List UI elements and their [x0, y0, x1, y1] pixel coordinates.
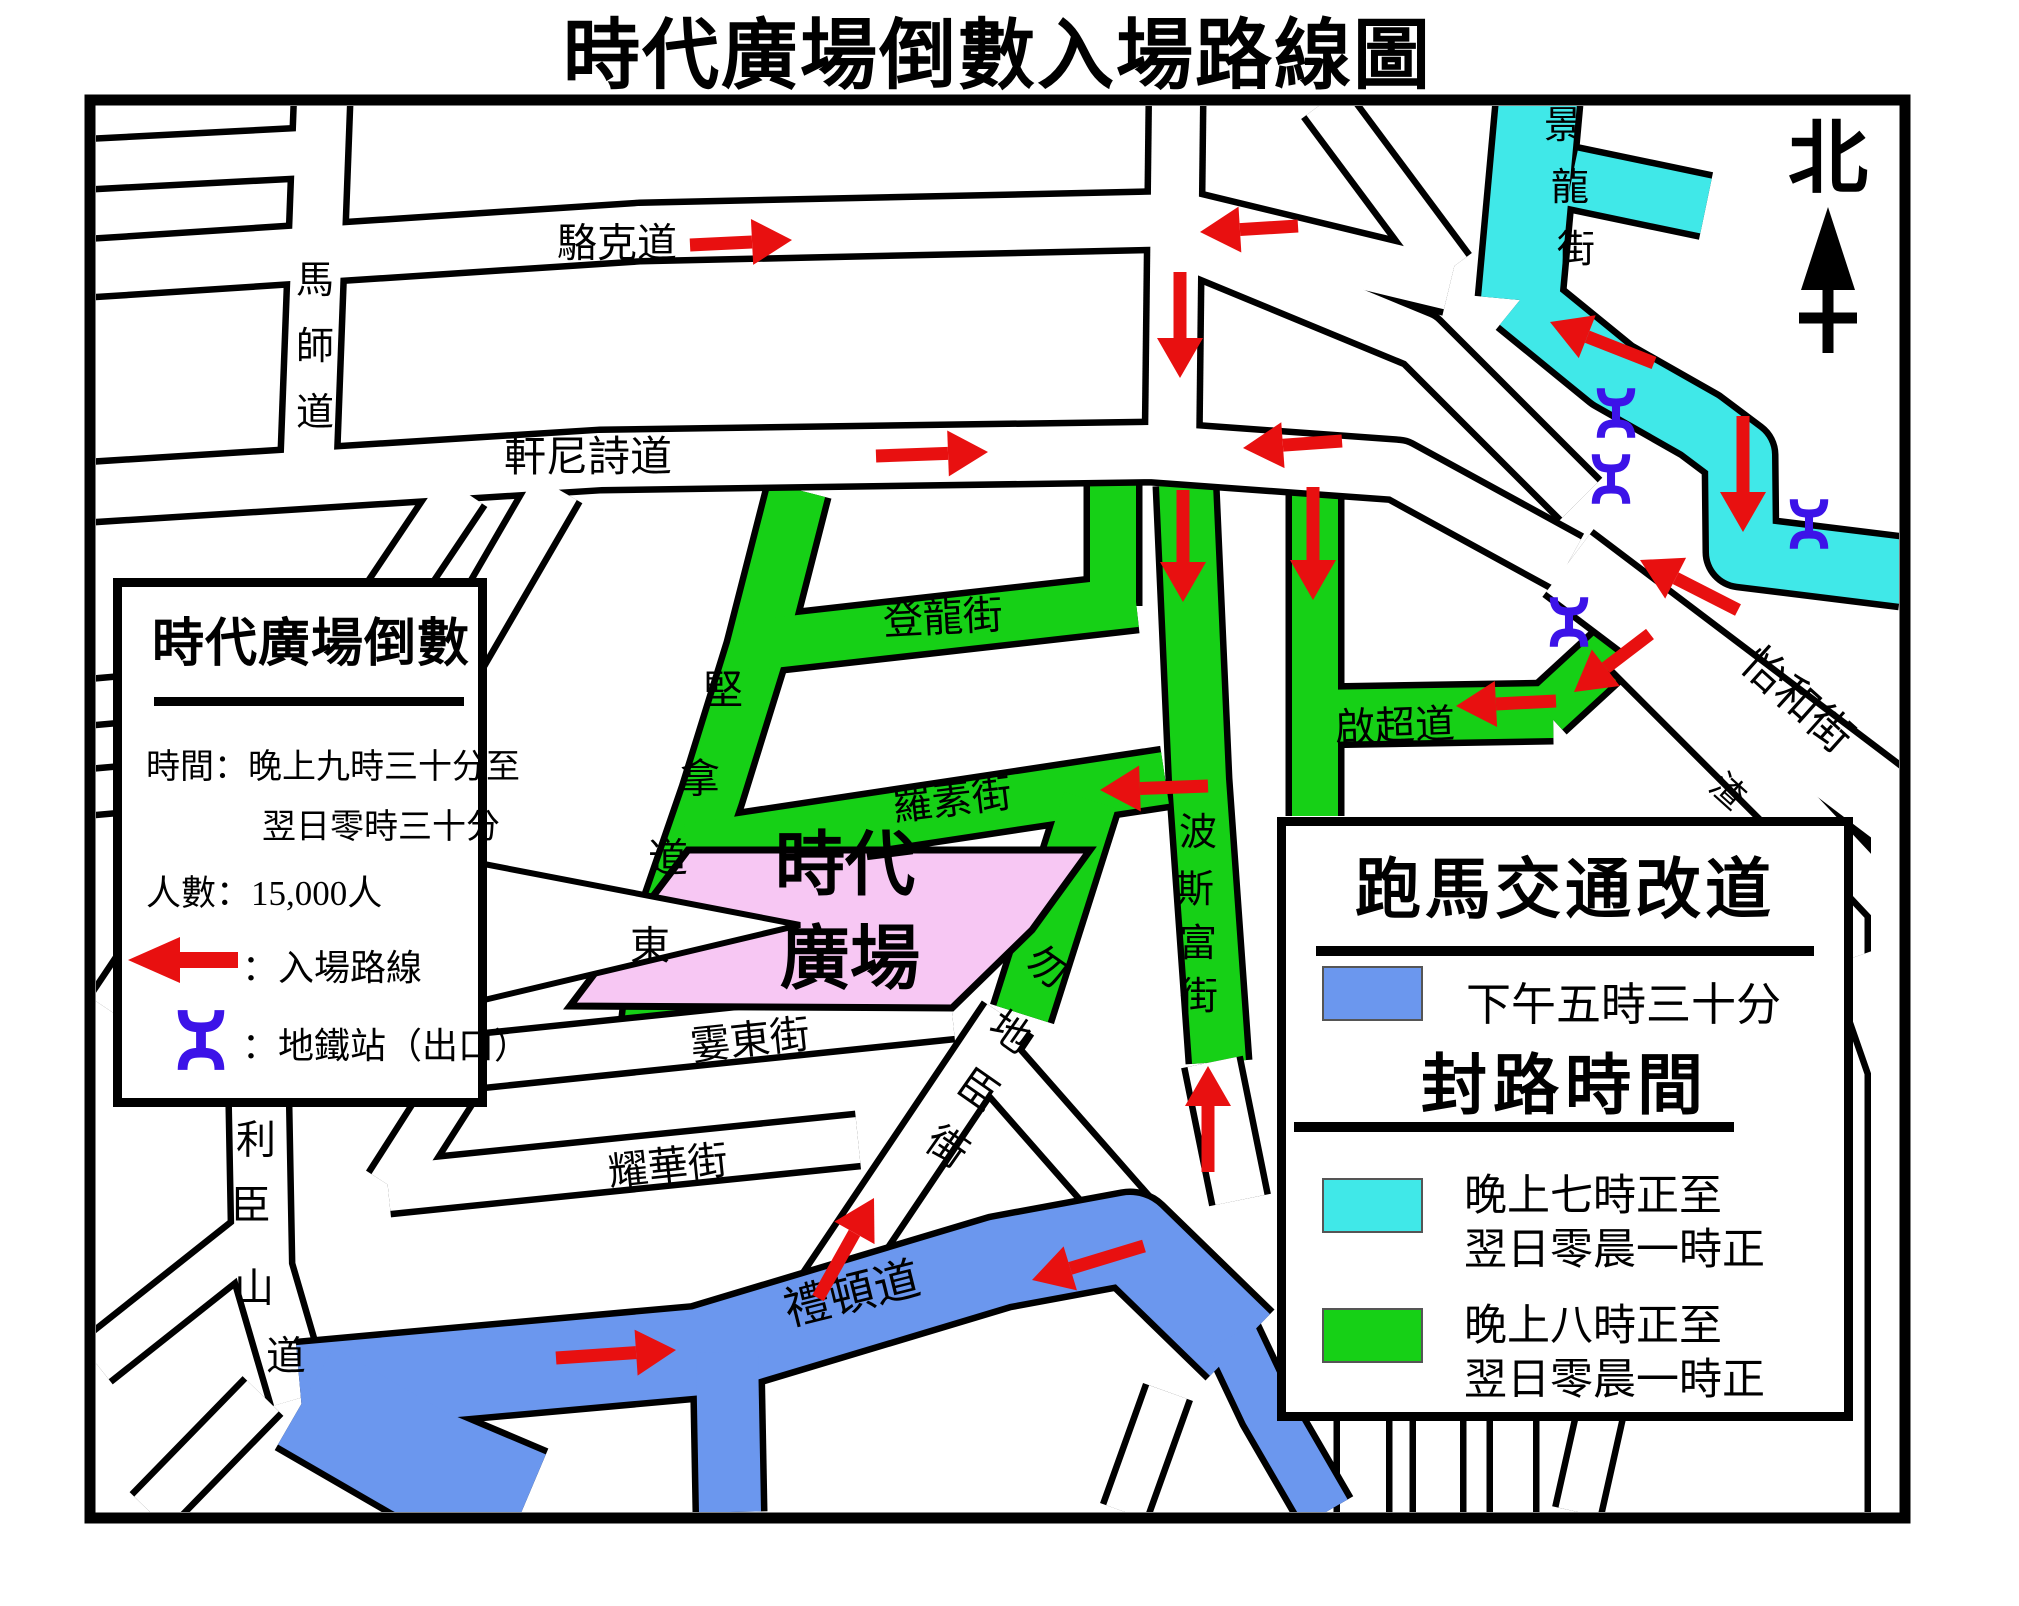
diversion-swatch-blue — [1322, 966, 1423, 1021]
map-label-tang-lung: 登龍街 — [882, 592, 1004, 643]
map-label-marsh-2: 師 — [296, 326, 334, 368]
closure-swatch-cyan — [1322, 1178, 1423, 1233]
legend-right-title-underline — [1316, 946, 1814, 956]
street-south-street-4 — [1578, 1414, 1600, 1512]
map-label-canal-east-2: 拿 — [680, 757, 720, 802]
closure-cyan-time: 晚上七時正至 翌日零晨一時正 — [1464, 1170, 1765, 1278]
street-top-left-street — [92, 152, 322, 164]
page-title: 時代廣場倒數入場路線圖 — [90, 0, 1905, 105]
north-label: 北 — [1788, 116, 1868, 204]
map-label-cannon-2: 龍 — [1551, 167, 1589, 209]
legend-left-title: 時代廣場倒數 — [152, 601, 470, 676]
mtr-station-icon — [156, 997, 246, 1083]
mtr-station-icon — [183, 1010, 220, 1070]
legend-time-line-1: 時間：晚上九時三十分至 — [146, 739, 520, 788]
mtr-station-label: ：地鐵站（出口） — [242, 1017, 530, 1069]
entry-route-label: ：入場路線 — [242, 939, 422, 991]
map-label-morrison-4: 道 — [266, 1334, 306, 1379]
map-label-cannon-3: 街 — [1557, 229, 1595, 271]
legend-right-title: 跑馬交通改道 — [1286, 836, 1844, 932]
map-label-marsh-3: 道 — [296, 392, 334, 434]
closure-green-time-2: 翌日零晨一時正 — [1464, 1354, 1765, 1408]
map-label-percival-2: 斯 — [1176, 869, 1214, 911]
map-label-lockhart: 駱克道 — [557, 221, 677, 266]
map-label-morrison-3: 山 — [234, 1266, 274, 1311]
closure-green-time-1: 晚上八時正至 — [1464, 1300, 1765, 1354]
map-label-times-square-1: 時代 — [775, 827, 915, 905]
map-label-marsh-1: 馬 — [296, 260, 334, 302]
closure-subtitle-underline — [1294, 1122, 1734, 1132]
closure-cyan-time-1: 晚上七時正至 — [1464, 1170, 1765, 1224]
map-label-percival-1: 波 — [1179, 812, 1217, 854]
diversion-time-label: 下午五時三十分 — [1466, 968, 1781, 1033]
closure-green-time: 晚上八時正至 翌日零晨一時正 — [1464, 1300, 1765, 1408]
map-label-morrison-1: 利 — [236, 1118, 276, 1163]
closure-subtitle: 封路時間 — [1286, 1032, 1844, 1128]
map-label-percival-3: 富 — [1179, 923, 1217, 965]
legend-headcount-line: 人數：15,000人 — [146, 865, 382, 916]
map-label-canal-east-4: 東 — [630, 924, 670, 969]
legend-times-square-countdown: 時代廣場倒數 時間：晚上九時三十分至 翌日零時三十分 人數：15,000人 ：入… — [113, 578, 487, 1107]
street-canal-road-south-stub — [727, 1352, 730, 1512]
legend-time-line-2: 翌日零時三十分 — [262, 799, 500, 848]
map-label-hennessy: 軒尼詩道 — [504, 435, 672, 481]
map-label-kai-chiu: 啟超道 — [1334, 701, 1455, 750]
map-label-cannon-1: 景 — [1544, 105, 1582, 147]
map-label-canal-east-1: 堅 — [703, 668, 743, 713]
map-label-canal-east-3: 道 — [648, 836, 688, 881]
closure-swatch-green — [1322, 1308, 1423, 1363]
legend-left-title-underline — [154, 697, 464, 706]
street-cannon-street — [1520, 102, 1538, 300]
map-label-percival-4: 街 — [1180, 976, 1218, 1018]
closure-cyan-time-2: 翌日零晨一時正 — [1464, 1224, 1765, 1278]
map-label-morrison-2: 臣 — [231, 1183, 271, 1228]
map-page: 時代廣場倒數入場路線圖 駱克道軒尼詩道馬師道景龍街怡和街渣登龍街堅拿道東羅素街波… — [0, 0, 2019, 1606]
street-cannon-street-stub — [1572, 178, 1706, 206]
entry-route-arrow-icon — [126, 935, 242, 985]
map-label-times-square-2: 廣場 — [780, 921, 920, 999]
legend-road-closures: 跑馬交通改道 下午五時三十分 封路時間 晚上七時正至 翌日零晨一時正 晚上八時正… — [1277, 817, 1853, 1421]
